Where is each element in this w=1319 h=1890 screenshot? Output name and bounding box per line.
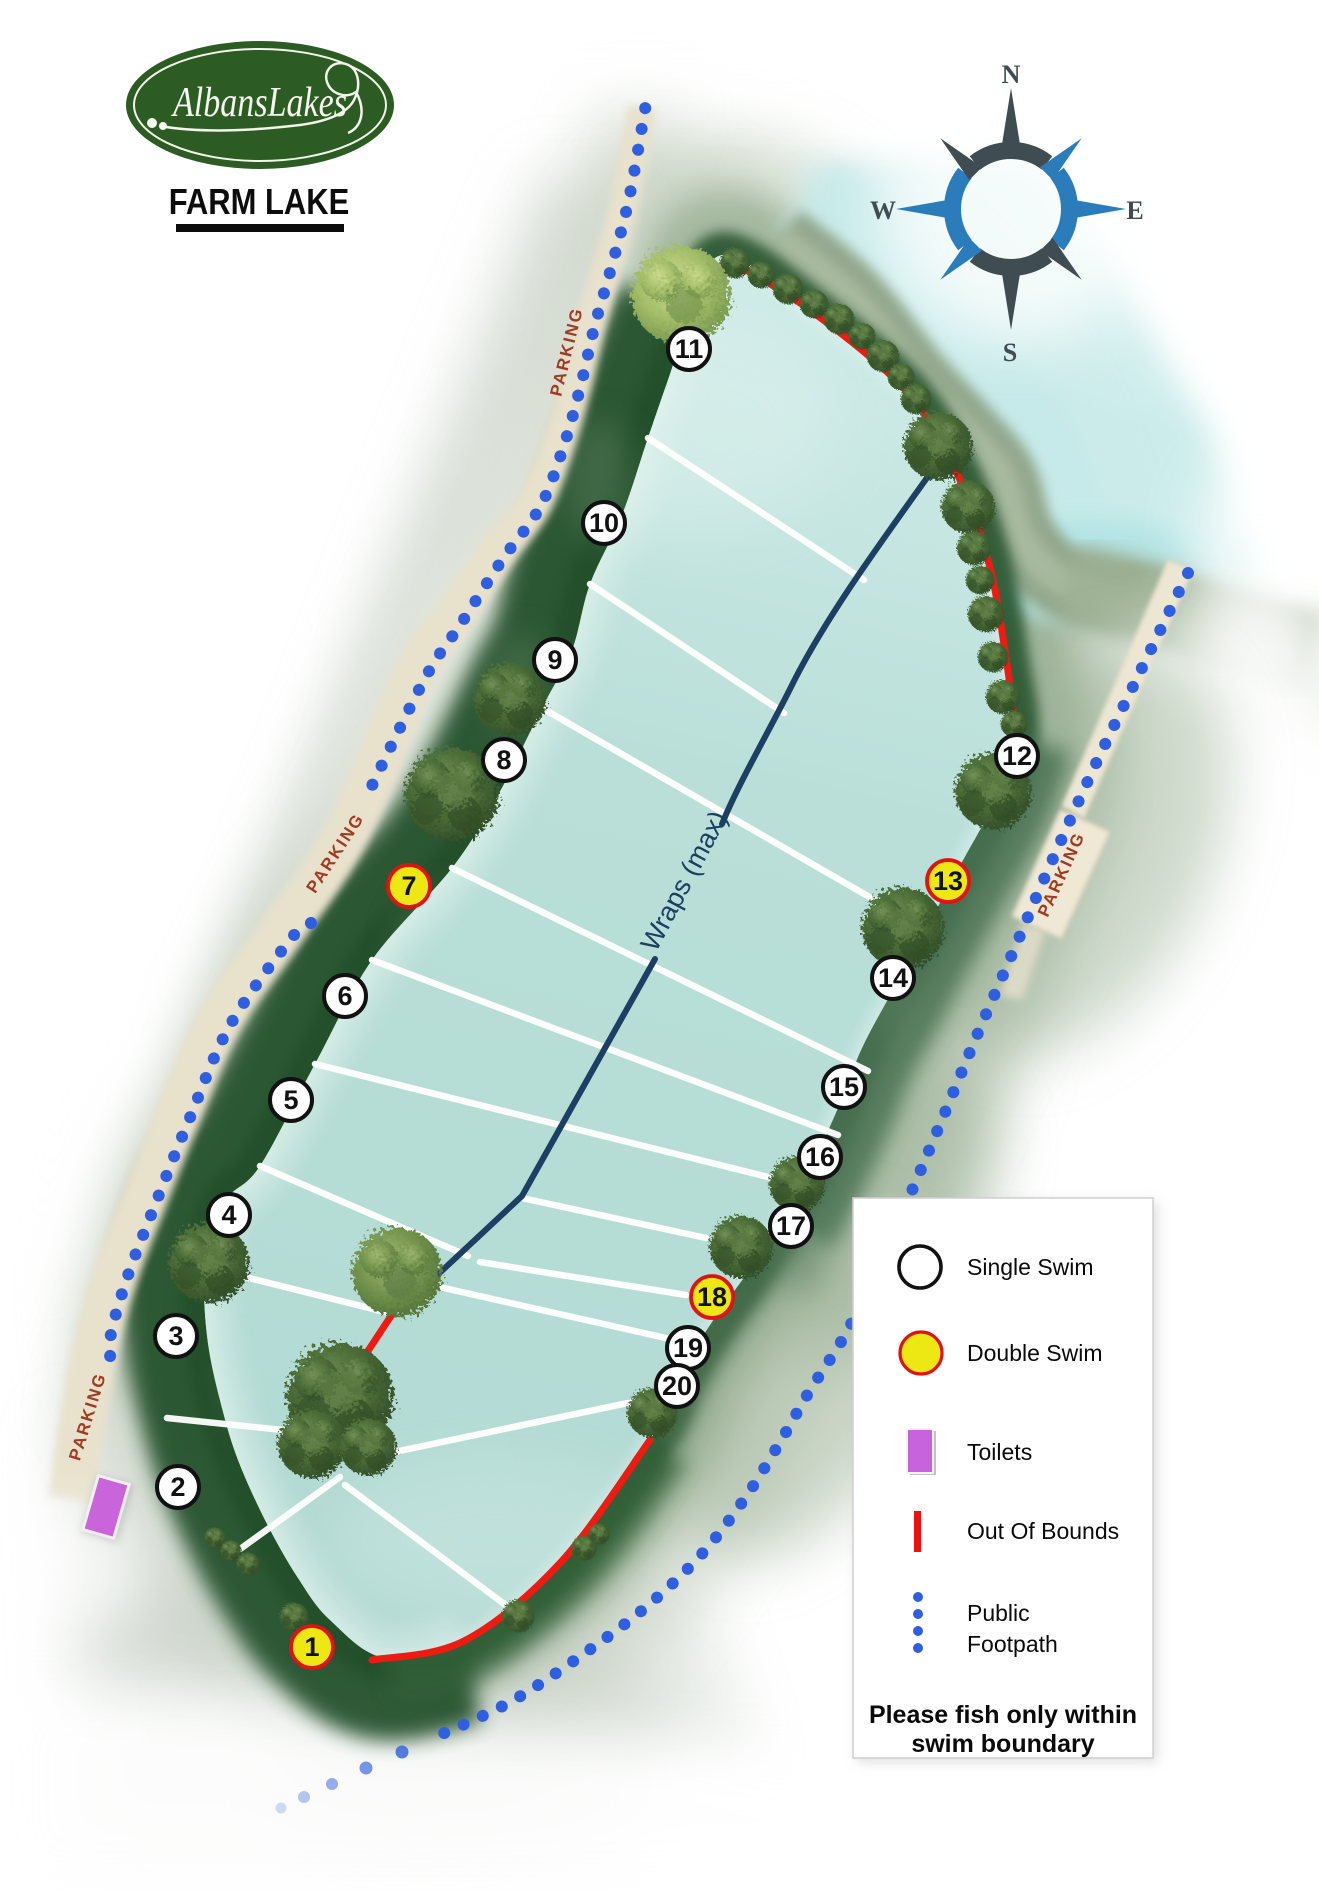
svg-text:Footpath: Footpath xyxy=(967,1631,1058,1657)
svg-text:18: 18 xyxy=(697,1282,727,1312)
svg-text:1: 1 xyxy=(304,1632,319,1662)
svg-text:E: E xyxy=(1126,196,1143,225)
svg-text:19: 19 xyxy=(673,1333,703,1363)
svg-text:2: 2 xyxy=(170,1472,185,1502)
svg-text:16: 16 xyxy=(805,1142,835,1172)
svg-text:10: 10 xyxy=(589,508,619,538)
svg-text:W: W xyxy=(870,196,896,225)
svg-text:FARM LAKE: FARM LAKE xyxy=(169,183,350,223)
svg-text:7: 7 xyxy=(401,871,416,901)
svg-text:4: 4 xyxy=(221,1200,236,1230)
svg-text:swim boundary: swim boundary xyxy=(911,1730,1094,1758)
svg-text:15: 15 xyxy=(829,1072,859,1102)
svg-text:Double Swim: Double Swim xyxy=(967,1340,1103,1366)
svg-text:3: 3 xyxy=(168,1321,183,1351)
svg-text:N: N xyxy=(1002,60,1021,89)
svg-text:5: 5 xyxy=(283,1085,298,1115)
svg-text:12: 12 xyxy=(1002,741,1032,771)
svg-text:17: 17 xyxy=(776,1211,806,1241)
svg-text:Public: Public xyxy=(967,1600,1030,1626)
svg-text:AlbansLakes: AlbansLakes xyxy=(171,80,347,126)
svg-text:8: 8 xyxy=(496,745,511,775)
svg-text:Out Of Bounds: Out Of Bounds xyxy=(967,1518,1119,1544)
svg-text:13: 13 xyxy=(933,866,963,896)
svg-text:Single Swim: Single Swim xyxy=(967,1254,1094,1280)
svg-text:20: 20 xyxy=(662,1371,692,1401)
svg-text:6: 6 xyxy=(337,981,352,1011)
svg-text:9: 9 xyxy=(547,645,562,675)
svg-text:Toilets: Toilets xyxy=(967,1439,1032,1465)
svg-text:14: 14 xyxy=(878,963,908,993)
svg-text:Please fish only within: Please fish only within xyxy=(869,1701,1137,1729)
svg-text:S: S xyxy=(1003,338,1017,367)
svg-text:11: 11 xyxy=(675,334,704,364)
